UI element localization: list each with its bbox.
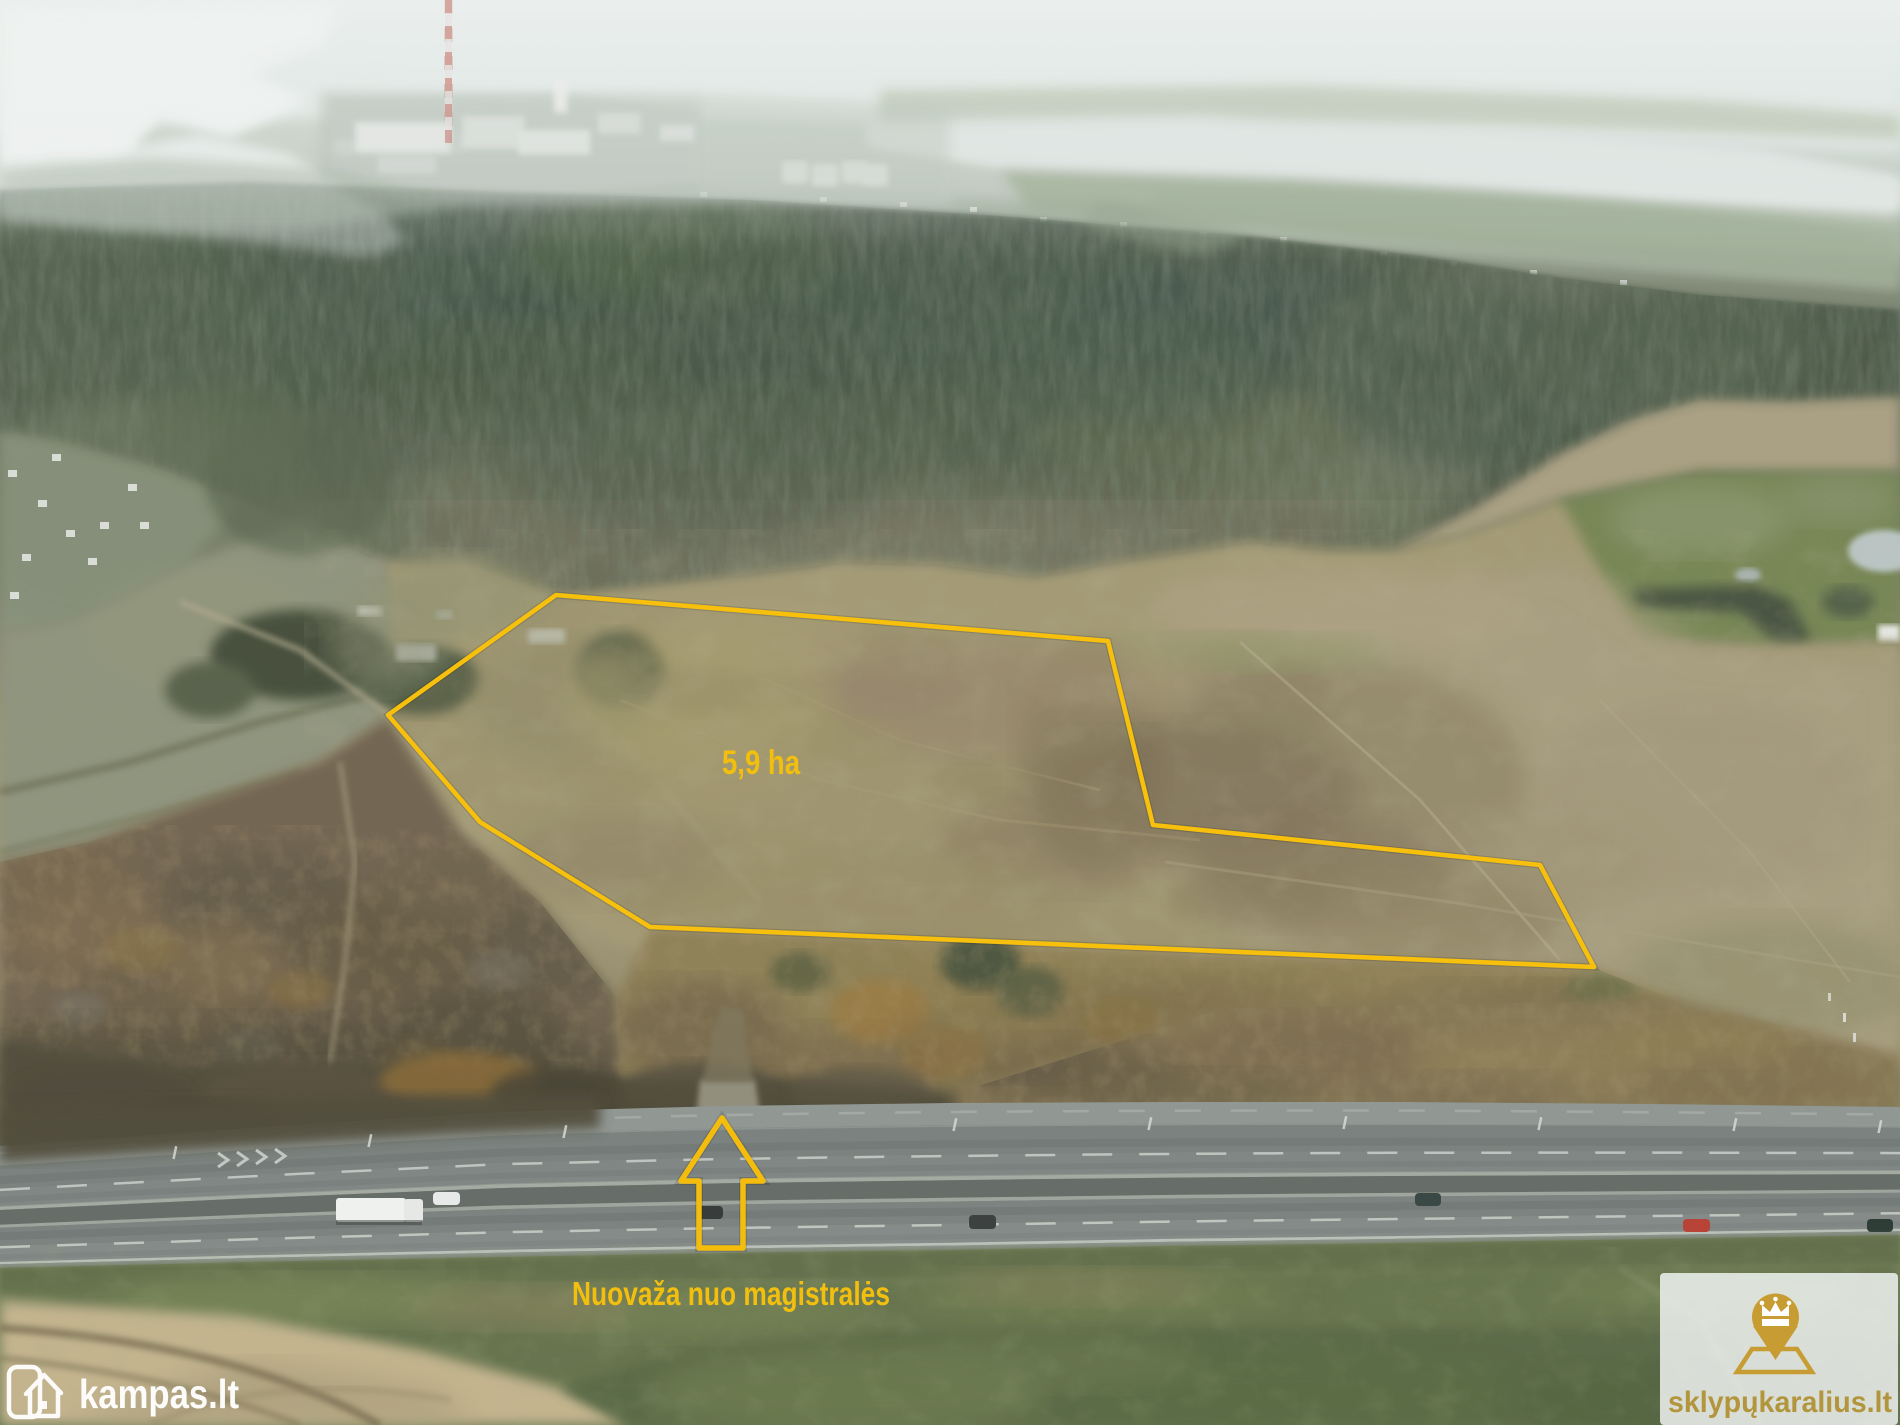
- svg-text:sklypųkaralius.lt: sklypųkaralius.lt: [1668, 1386, 1892, 1419]
- svg-text:5,9 ha: 5,9 ha: [722, 744, 801, 782]
- svg-text:kampas.lt: kampas.lt: [79, 1371, 239, 1417]
- svg-text:Nuovaža nuo magistralės: Nuovaža nuo magistralės: [572, 1275, 890, 1312]
